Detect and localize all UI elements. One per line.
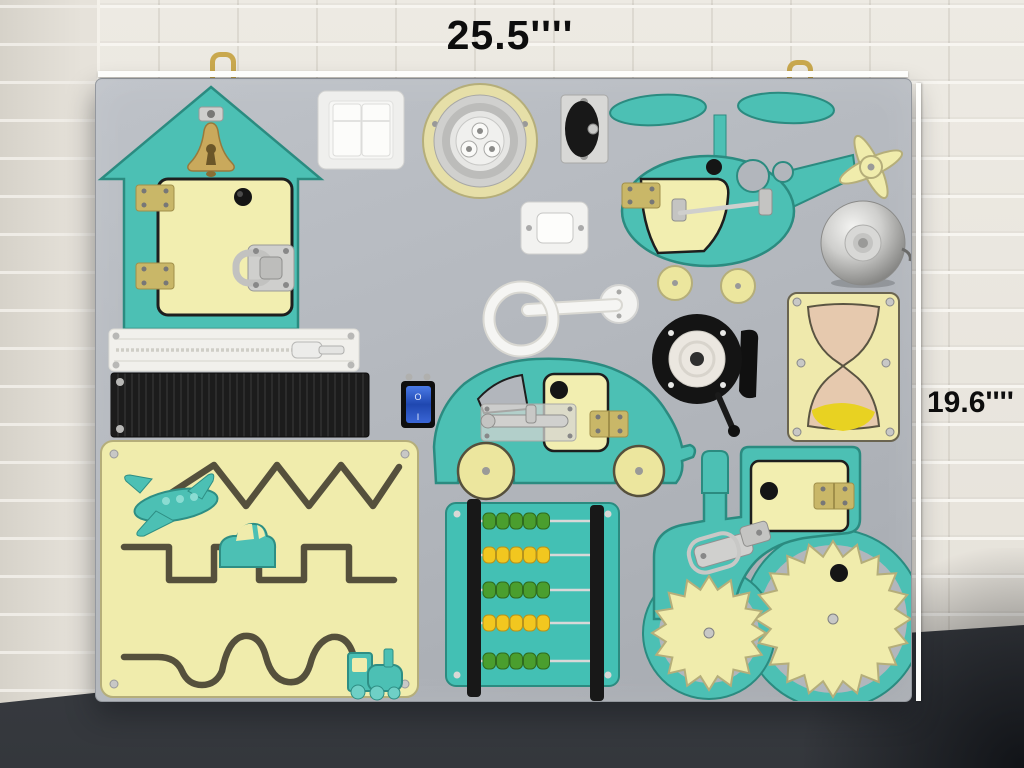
heli-hinge [622,183,660,208]
house-panel [101,87,321,329]
heli-window-large [737,160,769,192]
tractor-door-knob [760,482,778,500]
car-door-knob [550,381,568,399]
led-push-light [423,84,537,198]
yellow-discs [658,266,755,303]
car-panel [434,359,695,499]
light-switch [318,91,404,169]
abacus-rail-left [467,499,481,697]
tractor-hinge [814,483,854,509]
caster-wheel [561,95,608,163]
rocker-i-mark: I [417,412,420,422]
tractor-exhaust [702,451,728,493]
tractor-panel [643,447,911,701]
gear-knob [830,564,848,582]
house-door-knob [234,188,252,206]
zipper [109,329,359,371]
left-corner-wall [0,0,100,768]
hourglass [788,293,899,441]
abacus-rail-right [590,505,604,701]
abacus [446,499,619,701]
doorbell-button [521,202,588,254]
scene: O I [0,0,1024,768]
busy-board: O I [95,78,912,702]
zipper-slider [292,342,322,358]
towel-ring-handle [489,285,638,351]
velcro-strip [111,373,369,437]
maze-board [101,441,418,700]
rocker-switch: O I [401,374,435,429]
car-barrel-bolt [481,404,576,441]
heli-window-small [773,162,793,182]
height-measurement-line [916,83,921,701]
rocker-o-mark: O [414,392,421,402]
car-hinge [590,411,628,437]
width-measurement-line [98,71,908,77]
height-dimension-label: 19.6'''' [927,386,1024,420]
heli-door-knob [706,159,722,175]
call-bell [821,201,910,288]
width-dimension-label: 25.5'''' [370,12,650,59]
